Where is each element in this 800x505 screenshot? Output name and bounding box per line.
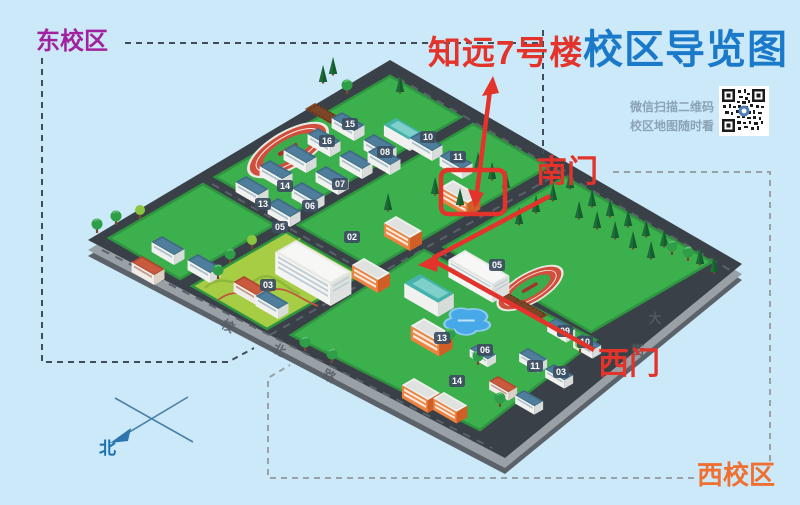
- svg-text:06: 06: [305, 201, 315, 211]
- svg-text:03: 03: [263, 280, 273, 290]
- svg-text:13: 13: [437, 333, 447, 343]
- compass: [110, 397, 193, 443]
- south-gate-label: 南门: [536, 156, 598, 187]
- svg-text:11: 11: [530, 361, 540, 371]
- campus-map: 校 北 路 大 街: [0, 0, 800, 505]
- svg-text:06: 06: [480, 345, 490, 355]
- svg-text:16: 16: [322, 136, 332, 146]
- svg-text:13: 13: [258, 199, 268, 209]
- svg-text:14: 14: [452, 376, 462, 386]
- highlight-callout-label: 知远7号楼: [428, 36, 583, 69]
- svg-text:05: 05: [275, 222, 285, 232]
- svg-text:02: 02: [347, 232, 357, 242]
- callout-arrowhead-top: [482, 76, 499, 96]
- svg-text:10: 10: [423, 132, 433, 142]
- west-gate-label: 西门: [598, 348, 660, 379]
- west-campus-label: 西校区: [694, 462, 778, 488]
- page-title: 校区导览图: [583, 30, 788, 70]
- east-campus-label: 东校区: [36, 30, 108, 54]
- svg-text:14: 14: [280, 181, 290, 191]
- qr-caption-line1: 微信扫描二维码: [630, 98, 714, 117]
- campus-guide-poster: 校 北 路 大 街: [0, 0, 800, 505]
- svg-text:大: 大: [648, 311, 661, 326]
- qr-caption: 微信扫描二维码 校区地图随时看: [630, 98, 714, 135]
- qr-code: [719, 86, 769, 136]
- svg-text:07: 07: [335, 179, 345, 189]
- svg-text:15: 15: [345, 119, 355, 129]
- svg-text:03: 03: [556, 367, 566, 377]
- svg-text:05: 05: [492, 260, 502, 270]
- qr-caption-line2: 校区地图随时看: [630, 117, 714, 136]
- svg-text:08: 08: [380, 147, 390, 157]
- svg-text:11: 11: [453, 152, 463, 162]
- compass-north-label: 北: [99, 440, 116, 457]
